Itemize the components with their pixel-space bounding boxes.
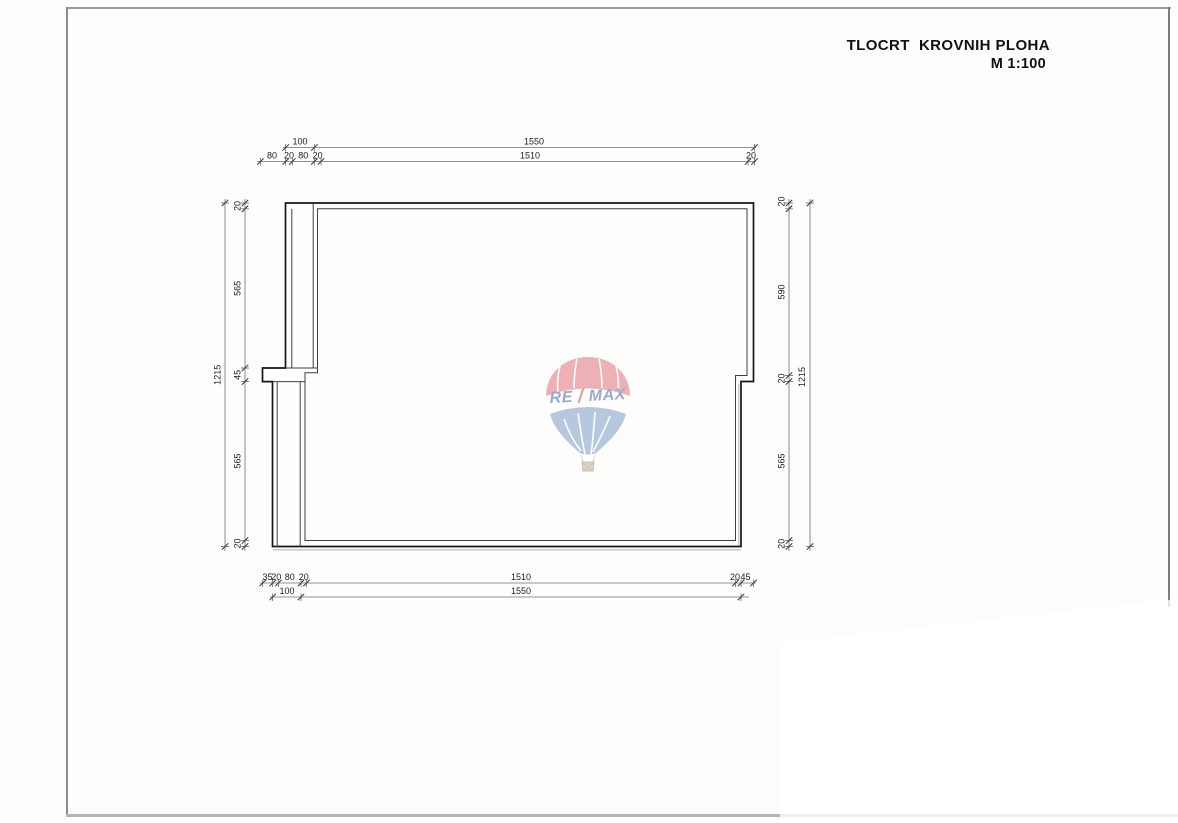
dim-label: 20 xyxy=(232,201,242,211)
dim-label: 100 xyxy=(292,137,307,147)
dim-label: 1550 xyxy=(511,586,531,596)
dimension-labels: 100 1550 80 20 80 20 1510 20 35 20 80 20… xyxy=(213,137,808,597)
dim-label: 20 xyxy=(777,373,787,383)
balloon-basket xyxy=(581,455,595,471)
dim-label: 20 xyxy=(746,151,756,161)
dim-label: 20 xyxy=(777,196,787,206)
dim-label: 20 xyxy=(777,539,787,549)
remax-wordmark-slash: / xyxy=(576,385,586,407)
balloon-bottom-blue xyxy=(550,407,626,455)
dim-label: 1215 xyxy=(213,365,223,385)
dim-label: 565 xyxy=(232,281,242,296)
dim-label: 1510 xyxy=(520,151,540,161)
dim-label: 1510 xyxy=(511,572,531,582)
roof-outline-outer xyxy=(263,203,754,547)
roof-outline-inner xyxy=(273,204,748,547)
remax-wordmark-max: MAX xyxy=(588,386,627,405)
dim-label: 45 xyxy=(232,370,242,380)
roof-outline xyxy=(263,203,754,547)
remax-balloon-watermark: RE / MAX xyxy=(540,354,636,474)
dim-label: 80 xyxy=(285,572,295,582)
dim-label: 20 xyxy=(271,572,281,582)
scan-shadow-lines xyxy=(273,384,741,550)
dim-label: 80 xyxy=(267,151,277,161)
dim-label: 20 xyxy=(313,151,323,161)
remax-wordmark-re: RE xyxy=(549,389,574,407)
dim-label: 565 xyxy=(232,453,242,468)
dim-label: 565 xyxy=(777,453,787,468)
dim-label: 20 xyxy=(284,151,294,161)
dim-label: 20 xyxy=(299,572,309,582)
dim-label: 100 xyxy=(279,586,294,596)
dim-label: 20 xyxy=(232,538,242,548)
dim-label: 80 xyxy=(298,151,308,161)
dim-label: 1550 xyxy=(524,137,544,147)
dim-label: 1215 xyxy=(797,367,807,387)
dim-label: 45 xyxy=(740,572,750,582)
dim-label: 590 xyxy=(777,284,787,299)
dim-label: 20 xyxy=(730,572,740,582)
